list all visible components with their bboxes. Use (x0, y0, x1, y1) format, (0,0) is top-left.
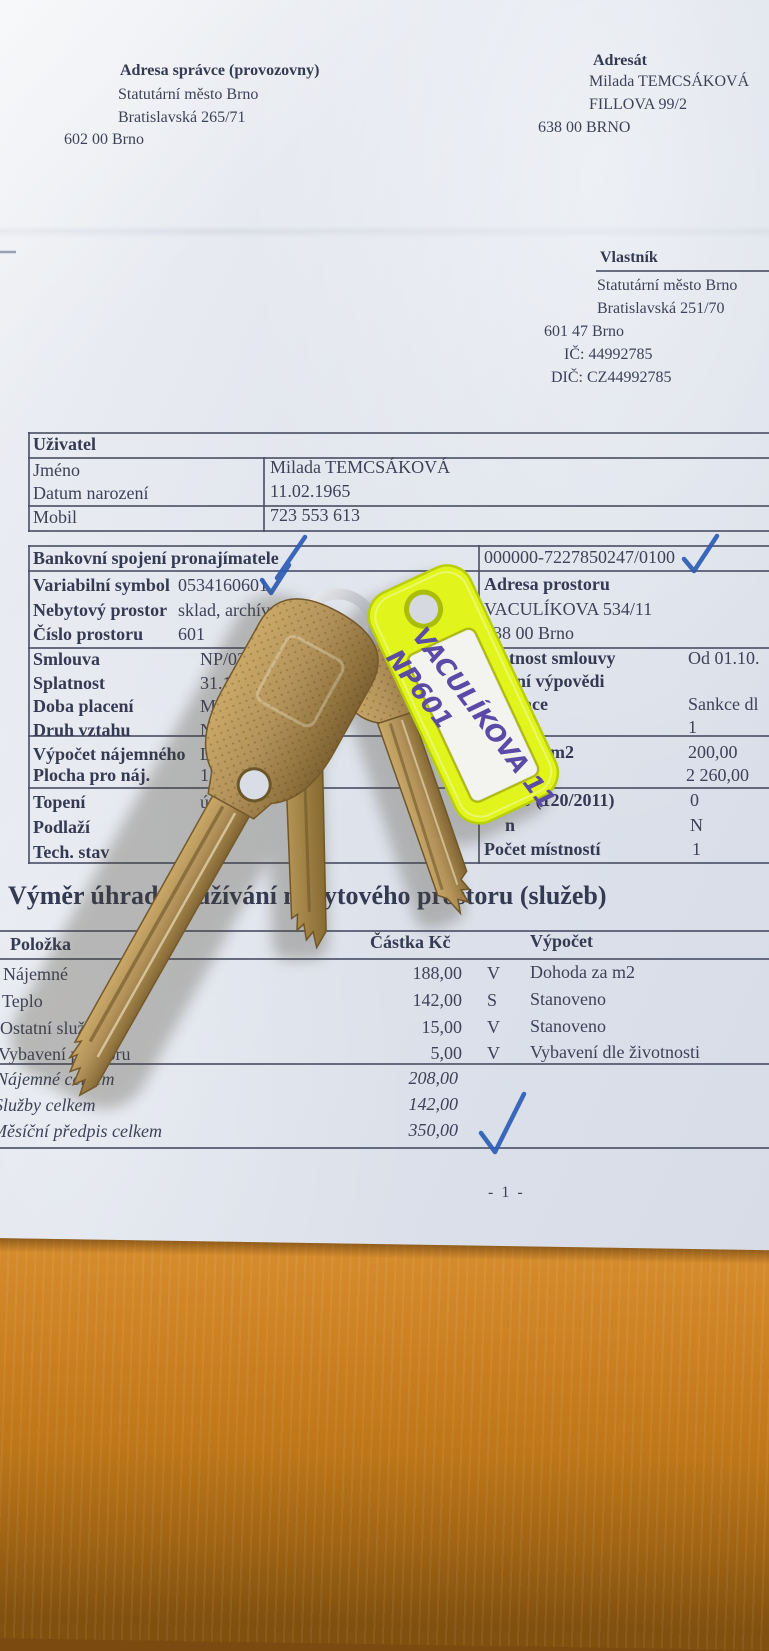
fee-item: Teplo (2, 992, 43, 1012)
contract-label: Topení (33, 793, 85, 813)
user-row-label: Datum narození (33, 484, 148, 504)
contract-value: Nájem (200, 721, 248, 741)
table-line (0, 1063, 769, 1065)
contract-value: sklad, archív (178, 601, 270, 621)
contract-value: ústřed (200, 793, 244, 813)
fees-heading: Výměr úhrad za užívání nebytového prosto… (8, 882, 607, 911)
contract-label: Platnost smlouvy (484, 649, 616, 669)
fee-flag: V (487, 1018, 500, 1038)
table-line (28, 545, 30, 864)
owner-zip-city: 601 47 Brno (544, 323, 624, 341)
table-line (263, 457, 265, 532)
fee-amount: 188,00 (342, 964, 462, 984)
contract-label: Počet místností (484, 840, 600, 860)
admin-zip-city: 602 00 Brno (64, 131, 144, 149)
contract-value: 0534160601 (178, 576, 268, 596)
user-row-value: 11.02.1965 (270, 482, 350, 502)
fee-calc: Stanoveno (530, 1017, 606, 1037)
admin-org: Statutární město Brno (118, 86, 258, 104)
fee-item: Nájemné (3, 965, 68, 985)
table-line (0, 958, 769, 960)
contract-value: Sankce dl (688, 695, 758, 715)
fee-item: Vybavení prostoru (0, 1045, 130, 1065)
addressee-name: Milada TEMCSÁKOVÁ (589, 73, 749, 91)
addressee-zip-city: 638 00 BRNO (538, 119, 630, 137)
contract-value: 1 (200, 818, 209, 838)
table-line (28, 432, 30, 532)
contract-label: lizace (505, 695, 548, 715)
bank-section-label: Bankovní spojení pronajímatele (33, 549, 279, 569)
total-item: Nájemné celkem (0, 1070, 114, 1090)
admin-street: Bratislavská 265/71 (118, 109, 246, 127)
total-amount: 208,00 (338, 1069, 458, 1089)
fees-col-amount: Částka Kč (370, 933, 451, 953)
total-amount: 142,00 (338, 1095, 458, 1115)
contract-label: Adresa prostoru (484, 575, 610, 595)
contract-label: Smlouva (33, 650, 100, 670)
contract-label: číslo (120/2011) (497, 791, 615, 811)
table-line (28, 505, 769, 507)
contract-value: NP/027182/OB/20 (200, 650, 335, 670)
photo-scene: Adresa správce (provozovny) Statutární m… (0, 0, 769, 1600)
photo-of-rental-document-with-keys: { "doc": { "admin": { "label": "Adresa s… (0, 0, 769, 1600)
fee-amount: 5,00 (342, 1044, 462, 1064)
fees-col-item: Položka (10, 935, 71, 955)
table-line (28, 787, 769, 789)
contract-value: N (690, 816, 703, 836)
contract-value: Dohod (200, 745, 249, 765)
contract-label: Tech. stav (33, 843, 109, 863)
fees-col-calc: Výpočet (530, 932, 593, 952)
table-line (478, 545, 480, 864)
admin-block-label: Adresa správce (provozovny) (120, 62, 319, 80)
addressee-label: Adresát (593, 52, 647, 70)
text-fragment: or, (466, 747, 485, 767)
fee-amount: 15,00 (342, 1018, 462, 1038)
table-line (28, 735, 769, 737)
table-line (28, 862, 769, 864)
contract-label: n (505, 816, 515, 836)
owner-label: Vlastník (600, 249, 658, 267)
page-number: - 1 - (488, 1184, 525, 1202)
user-table-title: Uživatel (33, 435, 96, 455)
user-row-label: Jméno (33, 461, 80, 481)
contract-label: Číslo prostoru (33, 625, 143, 645)
contract-value: 2 260,00 (686, 766, 749, 786)
contract-value: 31.10.20 (200, 674, 263, 694)
fee-calc: Dohoda za m2 (530, 963, 635, 983)
owner-ic: IČ: 44992785 (564, 346, 652, 364)
contract-label: né (505, 766, 523, 786)
user-row-label: Mobil (33, 508, 77, 528)
addressee-street: FILLOVA 99/2 (589, 96, 687, 114)
fee-amount: 142,00 (342, 991, 462, 1011)
contract-value: 11,30 m (200, 766, 258, 786)
owner-street: Bratislavská 251/70 (597, 300, 725, 318)
wooden-table (0, 1238, 769, 1651)
user-row-value: Milada TEMCSÁKOVÁ (270, 458, 450, 478)
owner-org: Statutární město Brno (597, 277, 737, 295)
fee-flag: S (487, 991, 497, 1011)
contract-label: Výpočet nájemného (33, 745, 185, 765)
contract-label: Podlaží (33, 818, 90, 838)
table-line (28, 647, 769, 649)
total-item: Služby celkem (0, 1096, 95, 1116)
contract-value: 638 00 Brno (484, 624, 574, 644)
contract-value: 601 (178, 625, 205, 645)
contract-value: 1 (688, 718, 697, 738)
contract-label: sob (512, 718, 538, 738)
contract-value: 0 (690, 791, 699, 811)
bank-account-number: 000000-7227850247/0100 (484, 548, 675, 568)
contract-value: 1 (692, 840, 701, 860)
contract-label: Doba placení (33, 697, 134, 717)
contract-value: VACULÍKOVA 534/11 (484, 600, 652, 620)
total-item: Měsíční předpis celkem (0, 1122, 162, 1142)
table-line (0, 1147, 769, 1149)
fee-item: Ostatní služby 1 (0, 1019, 117, 1039)
contract-value: 200,00 (688, 743, 738, 763)
contract-label: dání výpovědi (497, 672, 605, 692)
contract-value: Měsíč (200, 697, 244, 717)
contract-label: Variabilní symbol (33, 576, 170, 596)
contract-label: Nebytový prostor (33, 601, 167, 621)
contract-label: Druh vztahu (33, 721, 131, 741)
fee-flag: V (487, 1044, 500, 1064)
fee-calc: Vybavení dle životnosti (530, 1043, 700, 1063)
contract-label: Plocha pro náj. (33, 766, 150, 786)
owner-dic: DIČ: CZ44992785 (551, 369, 671, 387)
contract-label: Splatnost (33, 674, 105, 694)
table-line (28, 432, 769, 434)
fee-flag: V (487, 964, 500, 984)
contract-value: Od 01.10. (688, 649, 760, 669)
contract-label: ba za m2 (505, 743, 574, 763)
total-amount: 350,00 (338, 1121, 458, 1141)
table-line (28, 530, 769, 532)
owner-underline (596, 270, 769, 272)
user-row-value: 723 553 613 (270, 506, 360, 526)
fee-calc: Stanoveno (530, 990, 606, 1010)
table-line (28, 570, 769, 572)
